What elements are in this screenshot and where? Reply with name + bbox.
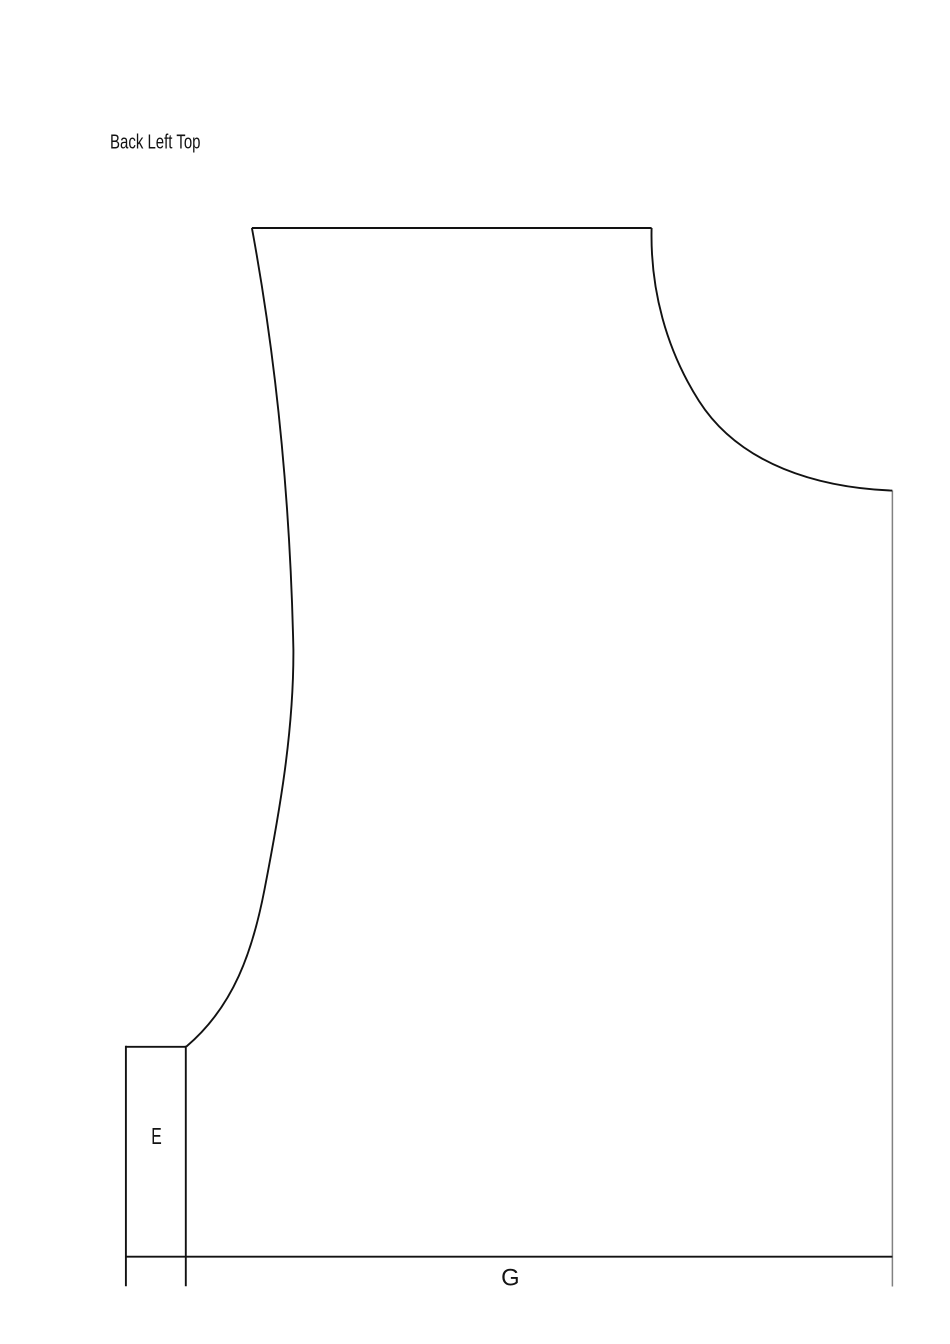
svg-text:G: G bbox=[501, 1265, 519, 1291]
svg-text:Back Left Top: Back Left Top bbox=[110, 132, 201, 154]
svg-text:E: E bbox=[151, 1123, 162, 1149]
